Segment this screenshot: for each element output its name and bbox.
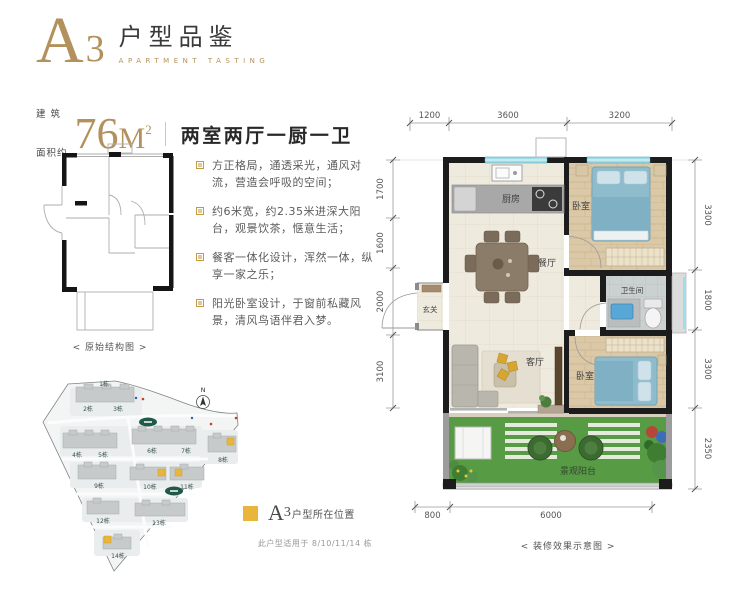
building-label: 1栋 bbox=[99, 380, 109, 388]
compass: N bbox=[197, 386, 210, 409]
bathroom bbox=[608, 299, 662, 328]
page-title: 户型品鉴 bbox=[119, 17, 270, 52]
room-label-kitchen: 厨房 bbox=[502, 193, 520, 205]
dim-right-3: 2350 bbox=[702, 438, 712, 460]
dim-top-1: 3600 bbox=[497, 111, 519, 121]
dim-left-0: 1700 bbox=[376, 178, 386, 200]
feature-list: 方正格局，通透采光，通风对流，营造会呼吸的空间； 约6米宽，约2.35米进深大阳… bbox=[196, 157, 379, 341]
flue-box bbox=[536, 138, 566, 157]
sofa bbox=[452, 345, 478, 407]
dim-right-2: 3300 bbox=[702, 358, 712, 380]
bullet-icon bbox=[196, 207, 204, 215]
room-label-bedroom1: 卧室 bbox=[572, 200, 590, 212]
feature-item: 餐客一体化设计，浑然一体，纵享一家之乐； bbox=[196, 249, 379, 283]
building-label: 12栋 bbox=[96, 517, 110, 525]
building-label: 8栋 bbox=[218, 456, 228, 464]
balcony-planter-box bbox=[455, 427, 491, 459]
building-label: 9栋 bbox=[94, 482, 104, 490]
building-label: 4栋 bbox=[72, 451, 82, 459]
dim-right-0: 3300 bbox=[702, 204, 712, 226]
feature-item: 方正格局，通透采光，通风对流，营造会呼吸的空间； bbox=[196, 157, 379, 191]
building-label: 13栋 bbox=[152, 519, 166, 527]
bedroom2 bbox=[595, 338, 666, 405]
building-label: 3栋 bbox=[113, 405, 123, 413]
building-label: 2栋 bbox=[83, 405, 93, 413]
building-label: 7栋 bbox=[181, 447, 191, 455]
balcony-table bbox=[555, 431, 576, 452]
series-letter: A bbox=[36, 16, 84, 66]
room-label-dining: 餐厅 bbox=[538, 257, 556, 269]
compass-label: N bbox=[201, 386, 206, 394]
stove bbox=[532, 187, 562, 211]
original-structure-plan bbox=[35, 143, 185, 338]
shoe-cabinet bbox=[422, 285, 441, 292]
room-label-living: 客厅 bbox=[526, 356, 544, 368]
nightstand bbox=[658, 355, 666, 365]
room-label-entry: 玄关 bbox=[423, 304, 438, 314]
tv-cabinet bbox=[555, 347, 562, 405]
layout-text: 两室两厅一厨一卫 bbox=[181, 121, 353, 148]
floorplan-caption: < 装修效果示意图 > bbox=[440, 539, 696, 552]
area-label-top: 建 筑 bbox=[36, 108, 68, 121]
dim-left-1: 1600 bbox=[376, 232, 386, 254]
site-plan: N 1栋 2栋 3栋 4栋 5栋 6栋 7栋 8栋 9栋 10栋 11栋 12栋… bbox=[40, 378, 240, 578]
bullet-icon bbox=[196, 299, 204, 307]
legend-text: 户型所在位置 bbox=[292, 506, 355, 521]
feature-item: 阳光卧室设计，于窗前私藏风景，清风鸟语伴君入梦。 bbox=[196, 295, 379, 329]
room-label-bedroom2: 卧室 bbox=[576, 370, 594, 382]
dim-bottom-1: 6000 bbox=[540, 511, 562, 521]
legend-series-number: 3 bbox=[284, 505, 291, 521]
building-label: 6栋 bbox=[147, 447, 157, 455]
building-label: 10栋 bbox=[143, 483, 157, 491]
sink bbox=[492, 165, 522, 181]
feature-item: 约6米宽，约2.35米进深大阳台，观景饮茶，惬意生活； bbox=[196, 203, 379, 237]
ac-ledge bbox=[672, 273, 686, 333]
dim-left-2: 2000 bbox=[376, 291, 386, 313]
header: A 3 户型品鉴 APARTMENT TASTING bbox=[36, 16, 269, 66]
feature-text: 阳光卧室设计，于窗前私藏风景，清风鸟语伴君入梦。 bbox=[212, 295, 379, 329]
bath-sink bbox=[611, 304, 633, 319]
corridor-floor bbox=[569, 276, 600, 330]
feature-text: 餐客一体化设计，浑然一体，纵享一家之乐； bbox=[212, 249, 379, 283]
series-number: 3 bbox=[86, 32, 105, 66]
toilet bbox=[645, 308, 661, 328]
dim-right-1: 1800 bbox=[702, 289, 712, 311]
room-label-bathroom: 卫生间 bbox=[621, 285, 644, 295]
building-label: 11栋 bbox=[180, 483, 194, 491]
fridge bbox=[454, 187, 476, 211]
building-label: 14栋 bbox=[111, 552, 125, 560]
nightstand bbox=[654, 165, 666, 176]
legend-series-letter: A bbox=[268, 504, 284, 522]
floor-plan: 厨房 卧室 餐厅 玄关 卫生间 客厅 卧室 景观阳台 1200 3600 320… bbox=[370, 105, 740, 560]
bullet-icon bbox=[196, 161, 204, 169]
dim-top-2: 3200 bbox=[609, 111, 631, 121]
page-subtitle: APARTMENT TASTING bbox=[119, 57, 270, 65]
feature-text: 方正格局，通透采光，通风对流，营造会呼吸的空间； bbox=[212, 157, 379, 191]
dim-top-0: 1200 bbox=[419, 111, 441, 121]
mini-plan-walls bbox=[62, 152, 174, 292]
site-legend: A 3 户型所在位置 bbox=[243, 504, 355, 522]
nightstand bbox=[576, 165, 588, 176]
dim-bottom-0: 800 bbox=[424, 511, 440, 521]
building-label: 5栋 bbox=[98, 451, 108, 459]
room-label-balcony: 景观阳台 bbox=[560, 465, 596, 477]
feature-text: 约6米宽，约2.35米进深大阳台，观景饮茶，惬意生活； bbox=[212, 203, 379, 237]
entry-door-arc bbox=[382, 293, 417, 328]
legend-gold-square bbox=[243, 506, 258, 521]
bullet-icon bbox=[196, 253, 204, 261]
original-plan-caption: < 原始结构图 > bbox=[35, 340, 185, 353]
dim-left-3: 3100 bbox=[376, 361, 386, 383]
